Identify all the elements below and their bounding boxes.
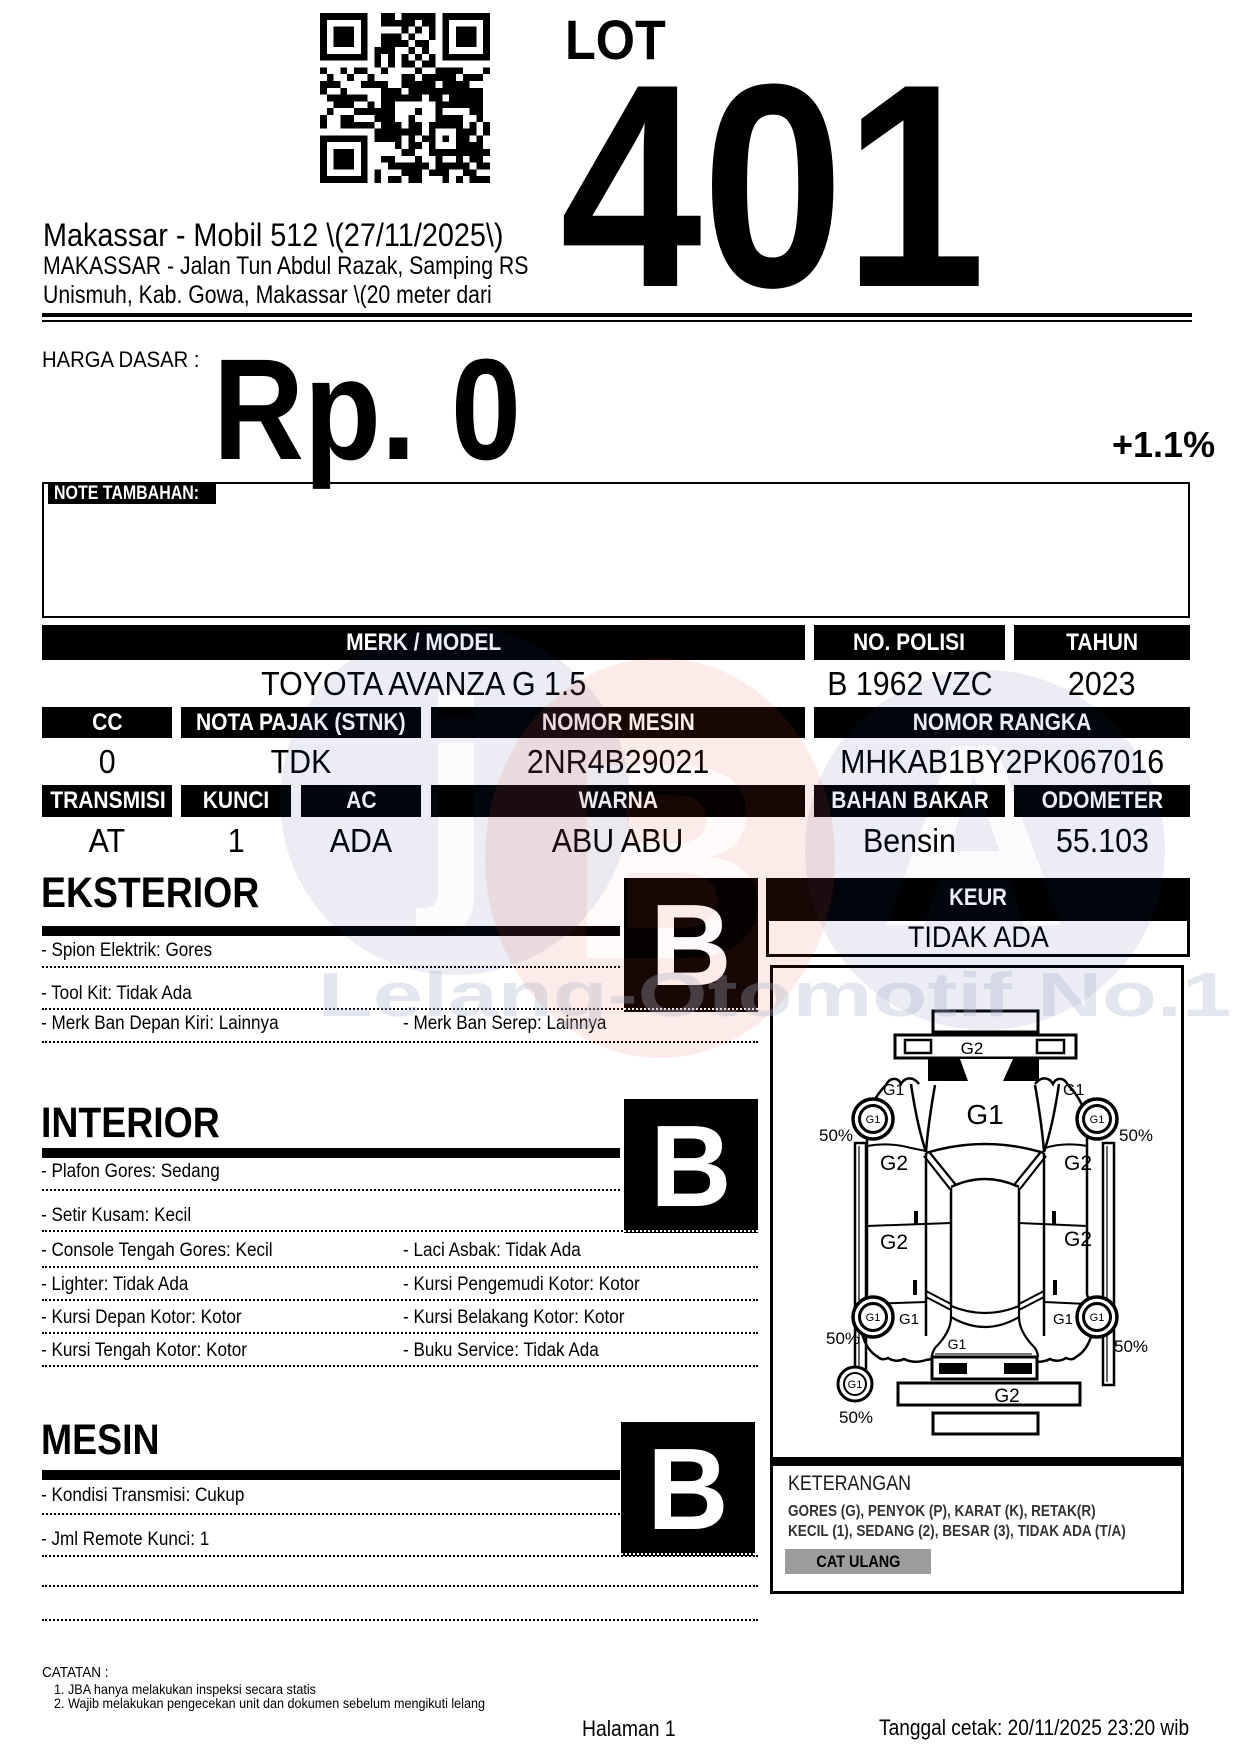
svg-text:G1: G1	[848, 1379, 863, 1391]
svg-text:50%: 50%	[1119, 1126, 1153, 1145]
svg-text:G2: G2	[961, 1039, 984, 1058]
svg-text:50%: 50%	[819, 1126, 853, 1145]
svg-text:G2: G2	[994, 1386, 1019, 1407]
svg-text:G2: G2	[880, 1152, 908, 1175]
svg-text:G1: G1	[899, 1311, 919, 1328]
svg-text:G1: G1	[866, 1114, 881, 1126]
svg-text:G1: G1	[1053, 1311, 1073, 1328]
svg-text:G1: G1	[866, 1312, 881, 1324]
svg-text:G2: G2	[1064, 1152, 1092, 1175]
svg-text:50%: 50%	[839, 1408, 873, 1427]
svg-text:G2: G2	[1064, 1228, 1092, 1251]
svg-text:G1: G1	[1090, 1114, 1105, 1126]
svg-text:G1: G1	[883, 1082, 904, 1099]
svg-text:G1: G1	[1063, 1082, 1084, 1099]
svg-text:G1: G1	[1090, 1312, 1105, 1324]
svg-text:G1: G1	[948, 1336, 967, 1352]
svg-text:50%: 50%	[826, 1329, 860, 1348]
svg-text:G2: G2	[880, 1231, 908, 1254]
svg-text:50%: 50%	[1114, 1337, 1148, 1356]
svg-text:G1: G1	[966, 1099, 1003, 1130]
